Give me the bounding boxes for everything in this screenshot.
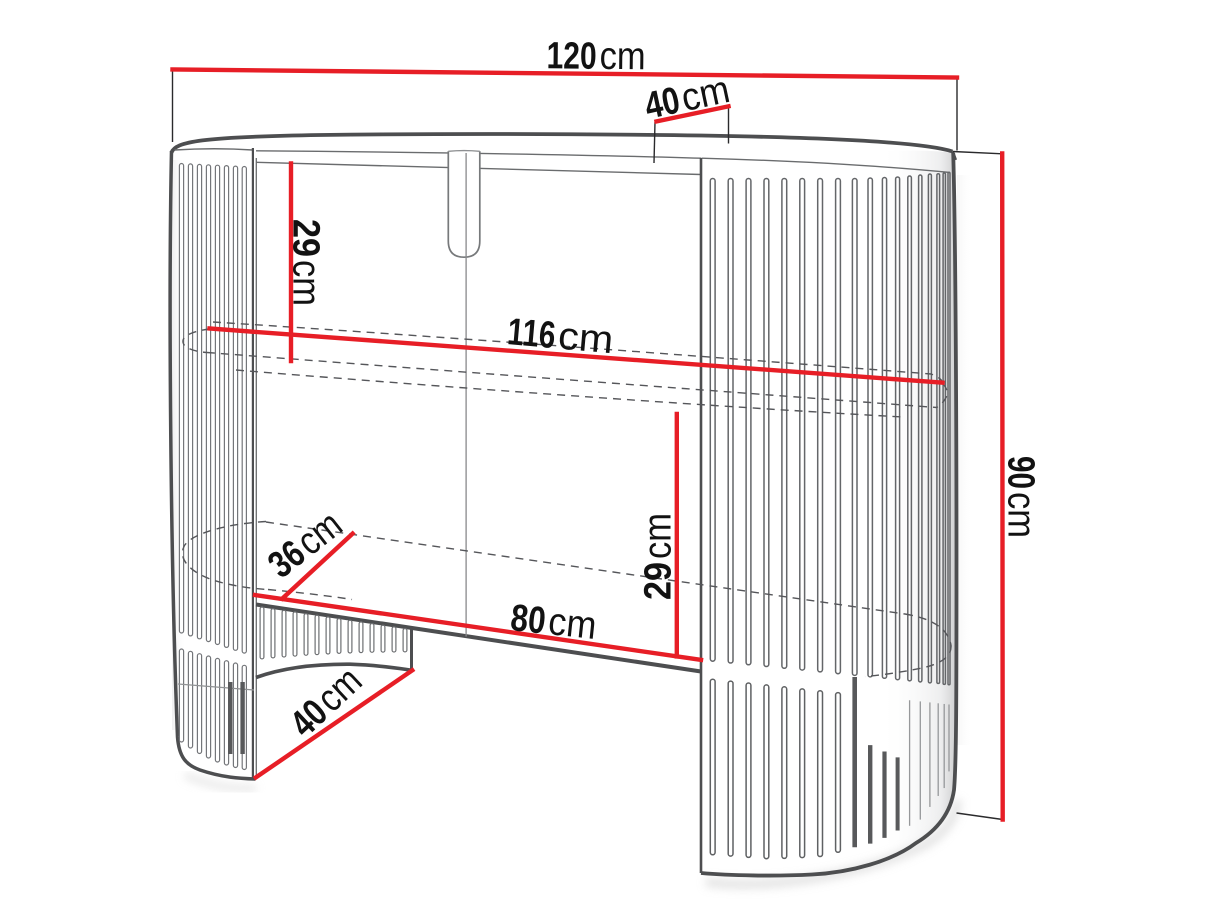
svg-text:29: 29 bbox=[285, 219, 327, 257]
svg-text:29: 29 bbox=[638, 562, 680, 600]
svg-text:cm: cm bbox=[599, 35, 645, 78]
svg-text:80: 80 bbox=[509, 597, 548, 642]
svg-text:120: 120 bbox=[546, 35, 596, 78]
svg-text:cm: cm bbox=[637, 513, 680, 559]
svg-text:cm: cm bbox=[546, 600, 598, 648]
svg-text:90: 90 bbox=[1000, 456, 1042, 489]
svg-text:116: 116 bbox=[506, 311, 557, 357]
svg-text:cm: cm bbox=[285, 260, 328, 306]
svg-text:cm: cm bbox=[1000, 492, 1043, 538]
svg-text:cm: cm bbox=[557, 315, 616, 363]
